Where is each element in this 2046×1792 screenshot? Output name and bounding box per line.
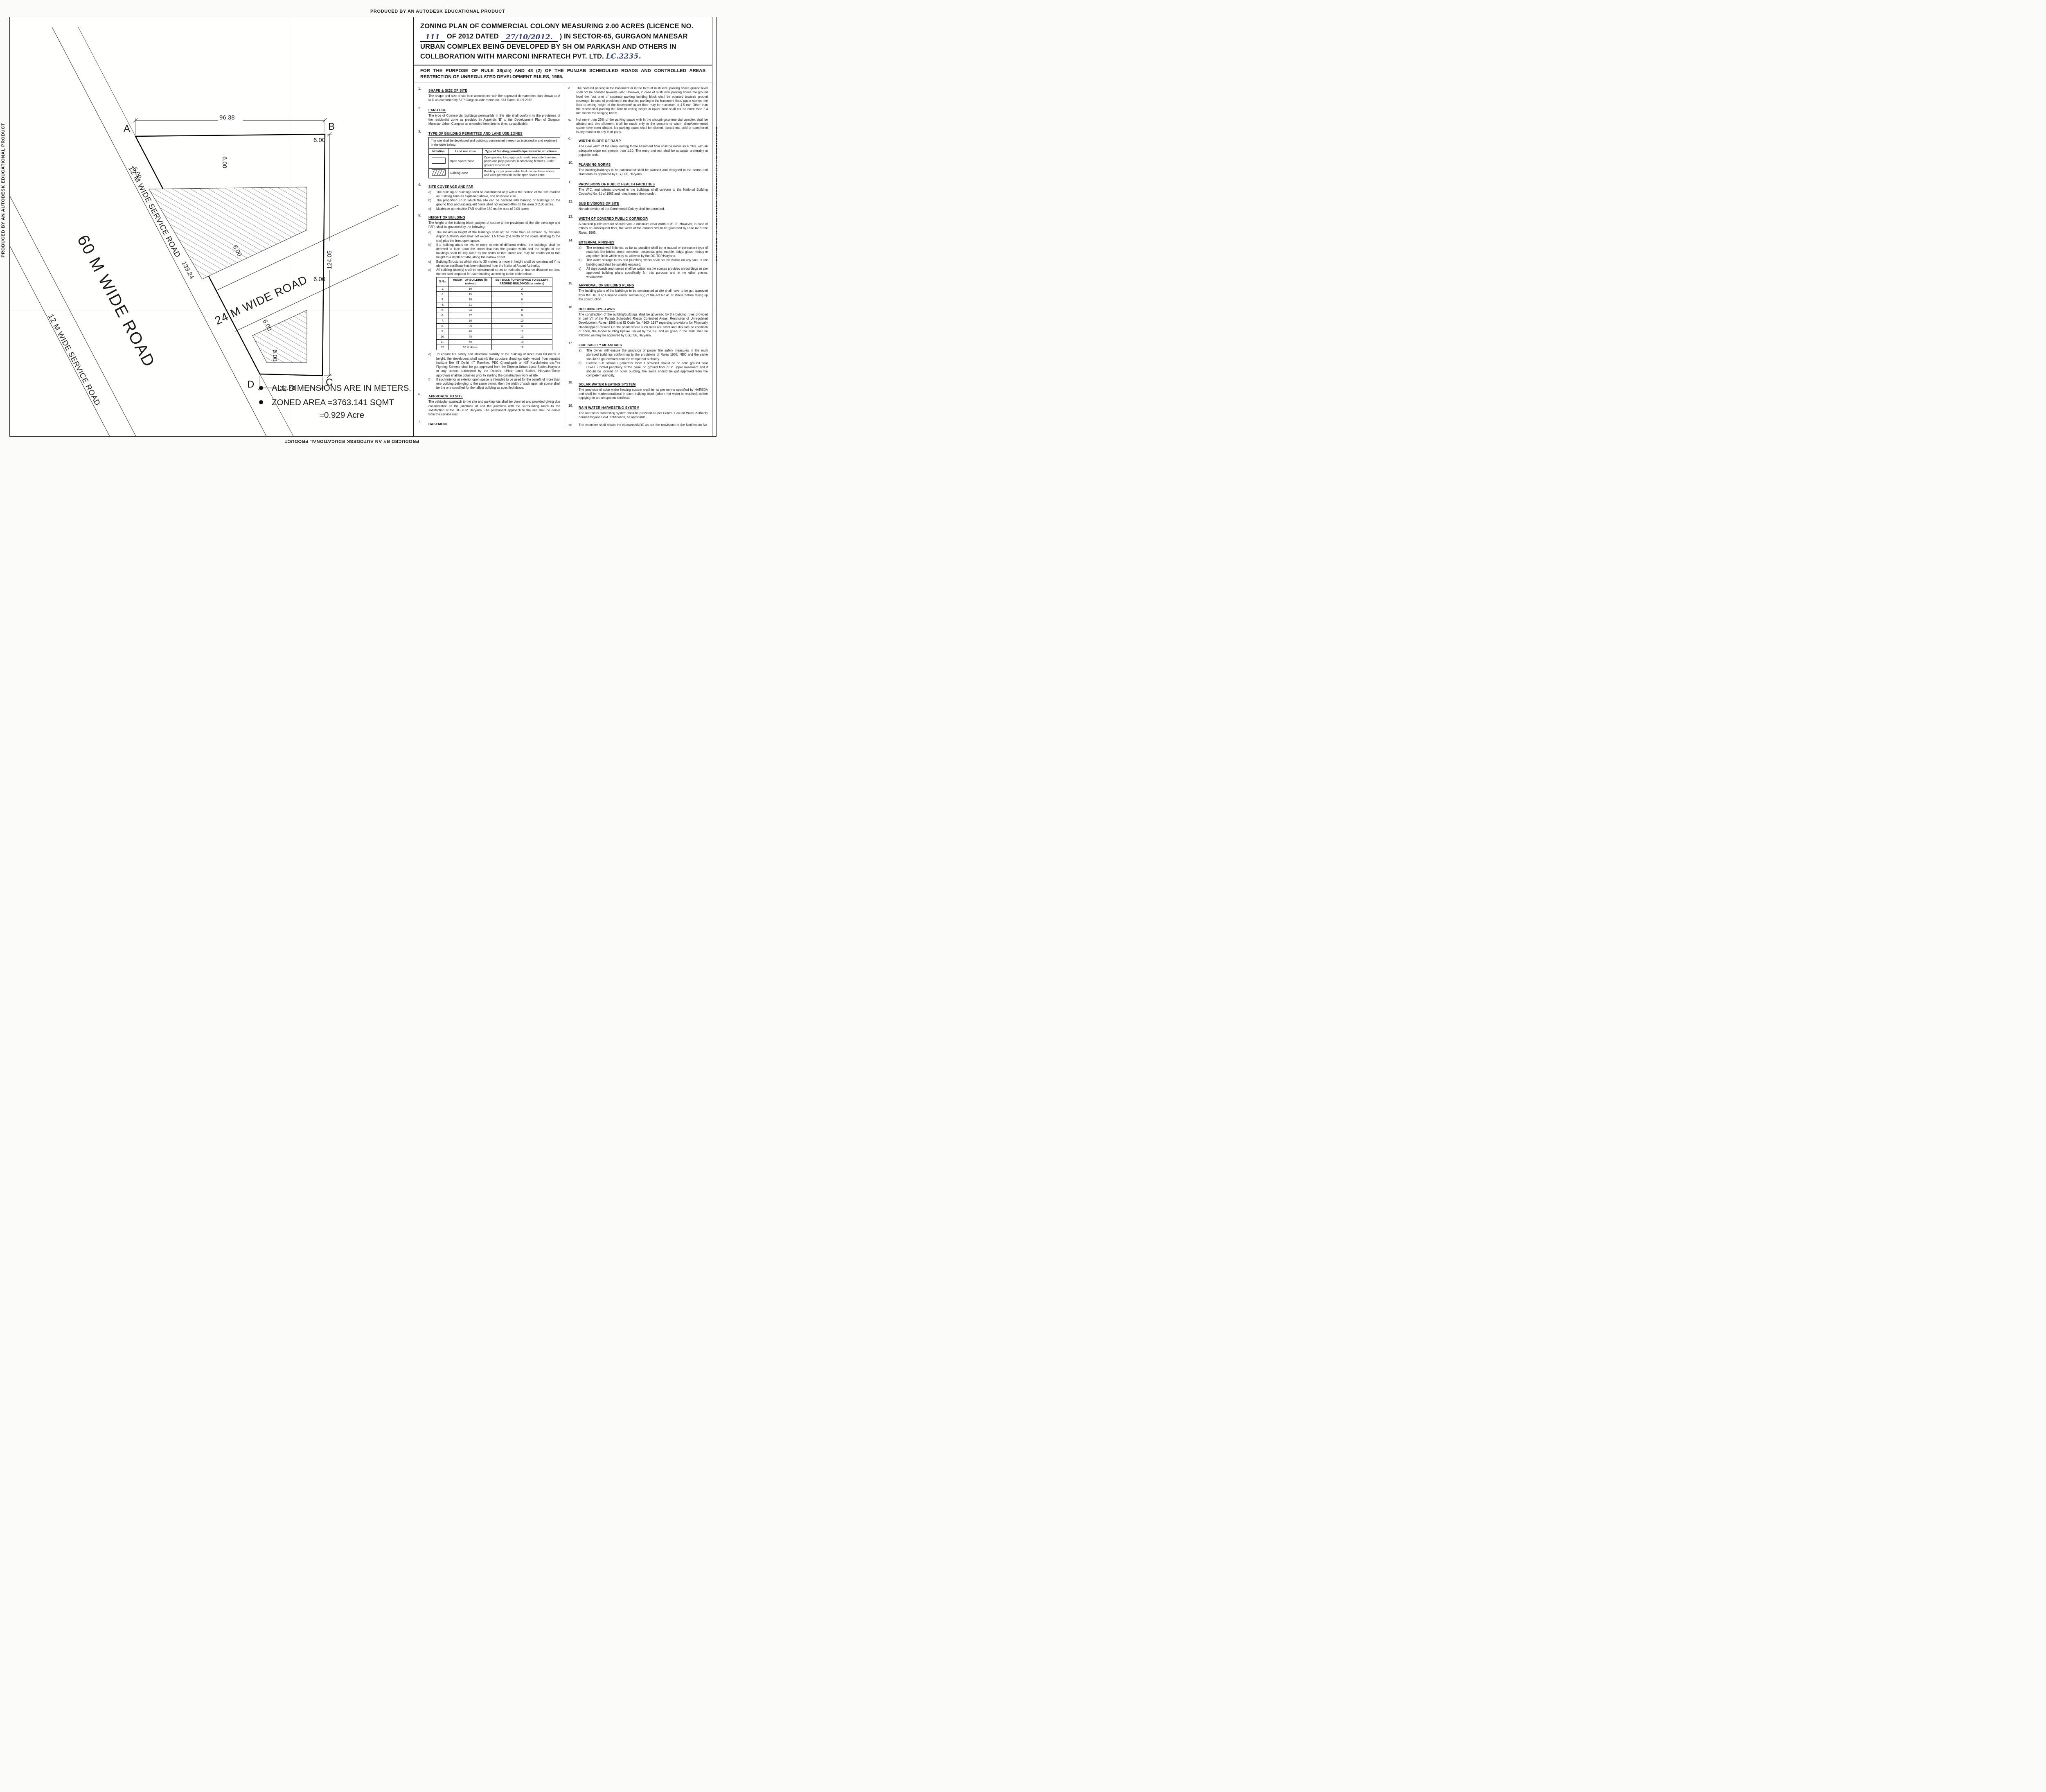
clause-height: 5. HEIGHT OF BUILDING The height of the … [418, 213, 560, 390]
purpose-statement: FOR THE PURPOSE OF RULE 38(xlii) AND 48 … [414, 65, 712, 83]
height-setback-table: S.No. HEIGHT OF BUILDING (in meters) SET… [436, 277, 552, 350]
setback-right-upper: 6.00 [313, 137, 325, 144]
height-row: 5. 24 8 [437, 308, 552, 313]
clause-corridor: 13. WIDTH OF COVERED PUBLIC CORRIDOR A c… [568, 214, 708, 236]
clause-item: a) The owner will ensure the provision o… [579, 349, 708, 361]
clauses-column-left: 1. SHAPE & SIZE OF SITE The shape and si… [414, 83, 564, 426]
title-block: ZONING PLAN OF COMMERCIAL COLONY MEASURI… [414, 17, 712, 65]
label-service-road-lower: 12 M WIDE SERVICE ROAD [47, 313, 102, 407]
clause-solar-water: 18. SOLAR WATER HEATING SYSTEM The provi… [568, 380, 708, 402]
clause-land-use: 2. LAND USE The type of Commercial build… [418, 106, 560, 128]
clause-ramp: 9. WIDTH/ SLOPE OF RAMP The clear width … [568, 137, 708, 158]
land-use-table: Notation Land use zone Type of Building … [428, 148, 560, 178]
clause-subdivision: 12. SUB DIVISIONS OF SITE No sub divisio… [568, 199, 708, 212]
site-plan-drawing: 96.38 124.05 32.78 139.24 6.00 6.00 6.00… [10, 17, 413, 436]
zone-swatch [432, 169, 446, 176]
clause-item: a) The maximum height of the buildings s… [428, 230, 560, 243]
edge-banner-top: PRODUCED BY AN AUTODESK EDUCATIONAL PROD… [370, 9, 505, 14]
setback-top: 6.00 [221, 156, 228, 168]
dim-right-label: 124.05 [326, 250, 333, 269]
zoning-plan-sheet: PRODUCED BY AN AUTODESK EDUCATIONAL PROD… [0, 0, 721, 448]
building-zone-upper [149, 187, 307, 279]
height-row: 2. 15 5 [437, 292, 552, 297]
label-road-60m: 60 M WIDE ROAD [74, 232, 158, 370]
title-seg3: 2012 DATED [458, 33, 499, 40]
title-seg1: ZONING PLAN OF COMMERCIAL COLONY MEASURI… [420, 23, 693, 30]
clause-public-health: 11. PROVISIONS OF PUBLIC HEALTH FACILITI… [568, 180, 708, 197]
clause-item: c) Building/Structures which rise to 30 … [428, 260, 560, 268]
building-zone-lower [252, 310, 307, 363]
corner-d: D [247, 379, 254, 390]
clause-parking-d: d. The covered parking in the basement o… [568, 86, 708, 115]
bullet-1 [259, 386, 263, 390]
licence-no-handwritten: 111 [420, 34, 445, 42]
clause-item: f) If such interior or exterior open spa… [428, 378, 560, 390]
title-date-handwritten: 27/10/2012. [501, 34, 558, 42]
clause-building-type: 3. TYPE OF BUILDING PERMITTED AND LAND U… [418, 129, 560, 180]
dim-top-label: 96.38 [219, 114, 235, 121]
height-row: 3. 18 6 [437, 297, 552, 302]
clause-shape-size: 1. SHAPE & SIZE OF SITE The shape and si… [418, 86, 560, 104]
clause-item: c) Maximum permissible FAR shall be 150 … [428, 207, 560, 211]
setback-right-lower: 6.00 [313, 276, 325, 283]
clause-item: b) The water storage tanks and plumbing … [579, 258, 708, 266]
clause-external-finishes: 14. EXTERNAL FINISHES a) The external wa… [568, 238, 708, 280]
height-row: 4. 21 7 [437, 302, 552, 308]
notes-panel: ZONING PLAN OF COMMERCIAL COLONY MEASURI… [413, 17, 712, 436]
clause-bye-laws: 16. BUILDING BYE-LAWS The construction o… [568, 305, 708, 339]
edge-banner-bottom: PRODUCED BY AN AUTODESK EDUCATIONAL PROD… [284, 439, 419, 444]
clause-item: a) The building or buildings shall be co… [428, 190, 560, 198]
lc-no-handwritten: LC.2235. [606, 52, 641, 61]
clause-item: b) Electric Sub Station / generator room… [579, 361, 708, 378]
zone-swatch [432, 158, 446, 164]
clause-fire-safety: 17. FIRE SAFETY MEASURES a) The owner wi… [568, 341, 708, 378]
height-row: 6. 27 9 [437, 313, 552, 318]
height-row: 1. 10 3 [437, 286, 552, 292]
corner-b: B [328, 121, 335, 132]
clause-item: a) The external wall finishes, so far as… [579, 246, 708, 259]
clause-item: e) To ensure fire safety and structural … [428, 352, 560, 377]
edge-banner-left: PRODUCED BY AN AUTODESK EDUCATIONAL PROD… [1, 123, 6, 257]
clause-planning-norms: 10. PLANNING NORMS The building/building… [568, 160, 708, 178]
clause-item: d) All building block(s) shall be constr… [428, 268, 560, 276]
setback-bottom: 6.00 [271, 349, 278, 361]
height-row: 7. 30 10 [437, 318, 552, 324]
clause-approach: 6. APPROACH TO SITE The vehicular approa… [418, 392, 560, 418]
clause-item: c) All sign boards and names shall be wr… [579, 267, 708, 280]
corner-a: A [124, 123, 130, 134]
clause-basement: 7. BASEMENT Four level basements within … [418, 420, 560, 426]
clause-site-coverage: 4. SITE COVERAGE AND FAR a) The building… [418, 183, 560, 211]
right-margin-line [712, 17, 712, 437]
note-dimensions: ALL DIMENSIONS ARE IN METERS. [272, 383, 411, 393]
clause-item: b) The proportion up to which the site c… [428, 198, 560, 207]
land-use-table-intro: The site shall be developed and building… [428, 137, 560, 149]
height-row: 9. 40 12 [437, 329, 552, 334]
height-row: 12. 55 & above 16 [437, 345, 552, 350]
clause-rain-water: 19. RAIN WATER HARVESTING SYSTEM The rai… [568, 403, 708, 421]
title-seg2: OF [447, 33, 456, 40]
bullet-2 [259, 400, 263, 404]
clauses-column-right: d. The covered parking in the basement o… [564, 83, 712, 426]
clause-approval-plans: 15. APPROVAL OF BUILDING PLANS The build… [568, 281, 708, 303]
clause-item: b) If a building abuts on two or more st… [428, 243, 560, 260]
land-use-row: Open Space Zone Open parking lots, appro… [429, 154, 560, 168]
height-row: 10. 45 13 [437, 334, 552, 340]
height-row: 11. 50 14 [437, 340, 552, 345]
land-use-row: Building Zone Building as per permissibl… [429, 168, 560, 178]
height-row: 8. 35 11 [437, 324, 552, 329]
note-zoned-area: ZONED AREA =3763.141 SQMT [272, 398, 394, 407]
note-acre: =0.929 Acre [319, 410, 364, 420]
clause-noc: 20. The colonizer shall obtain the clear… [568, 423, 708, 426]
clause-parking-e: e. Not more than 25% of the parking spac… [568, 118, 708, 135]
